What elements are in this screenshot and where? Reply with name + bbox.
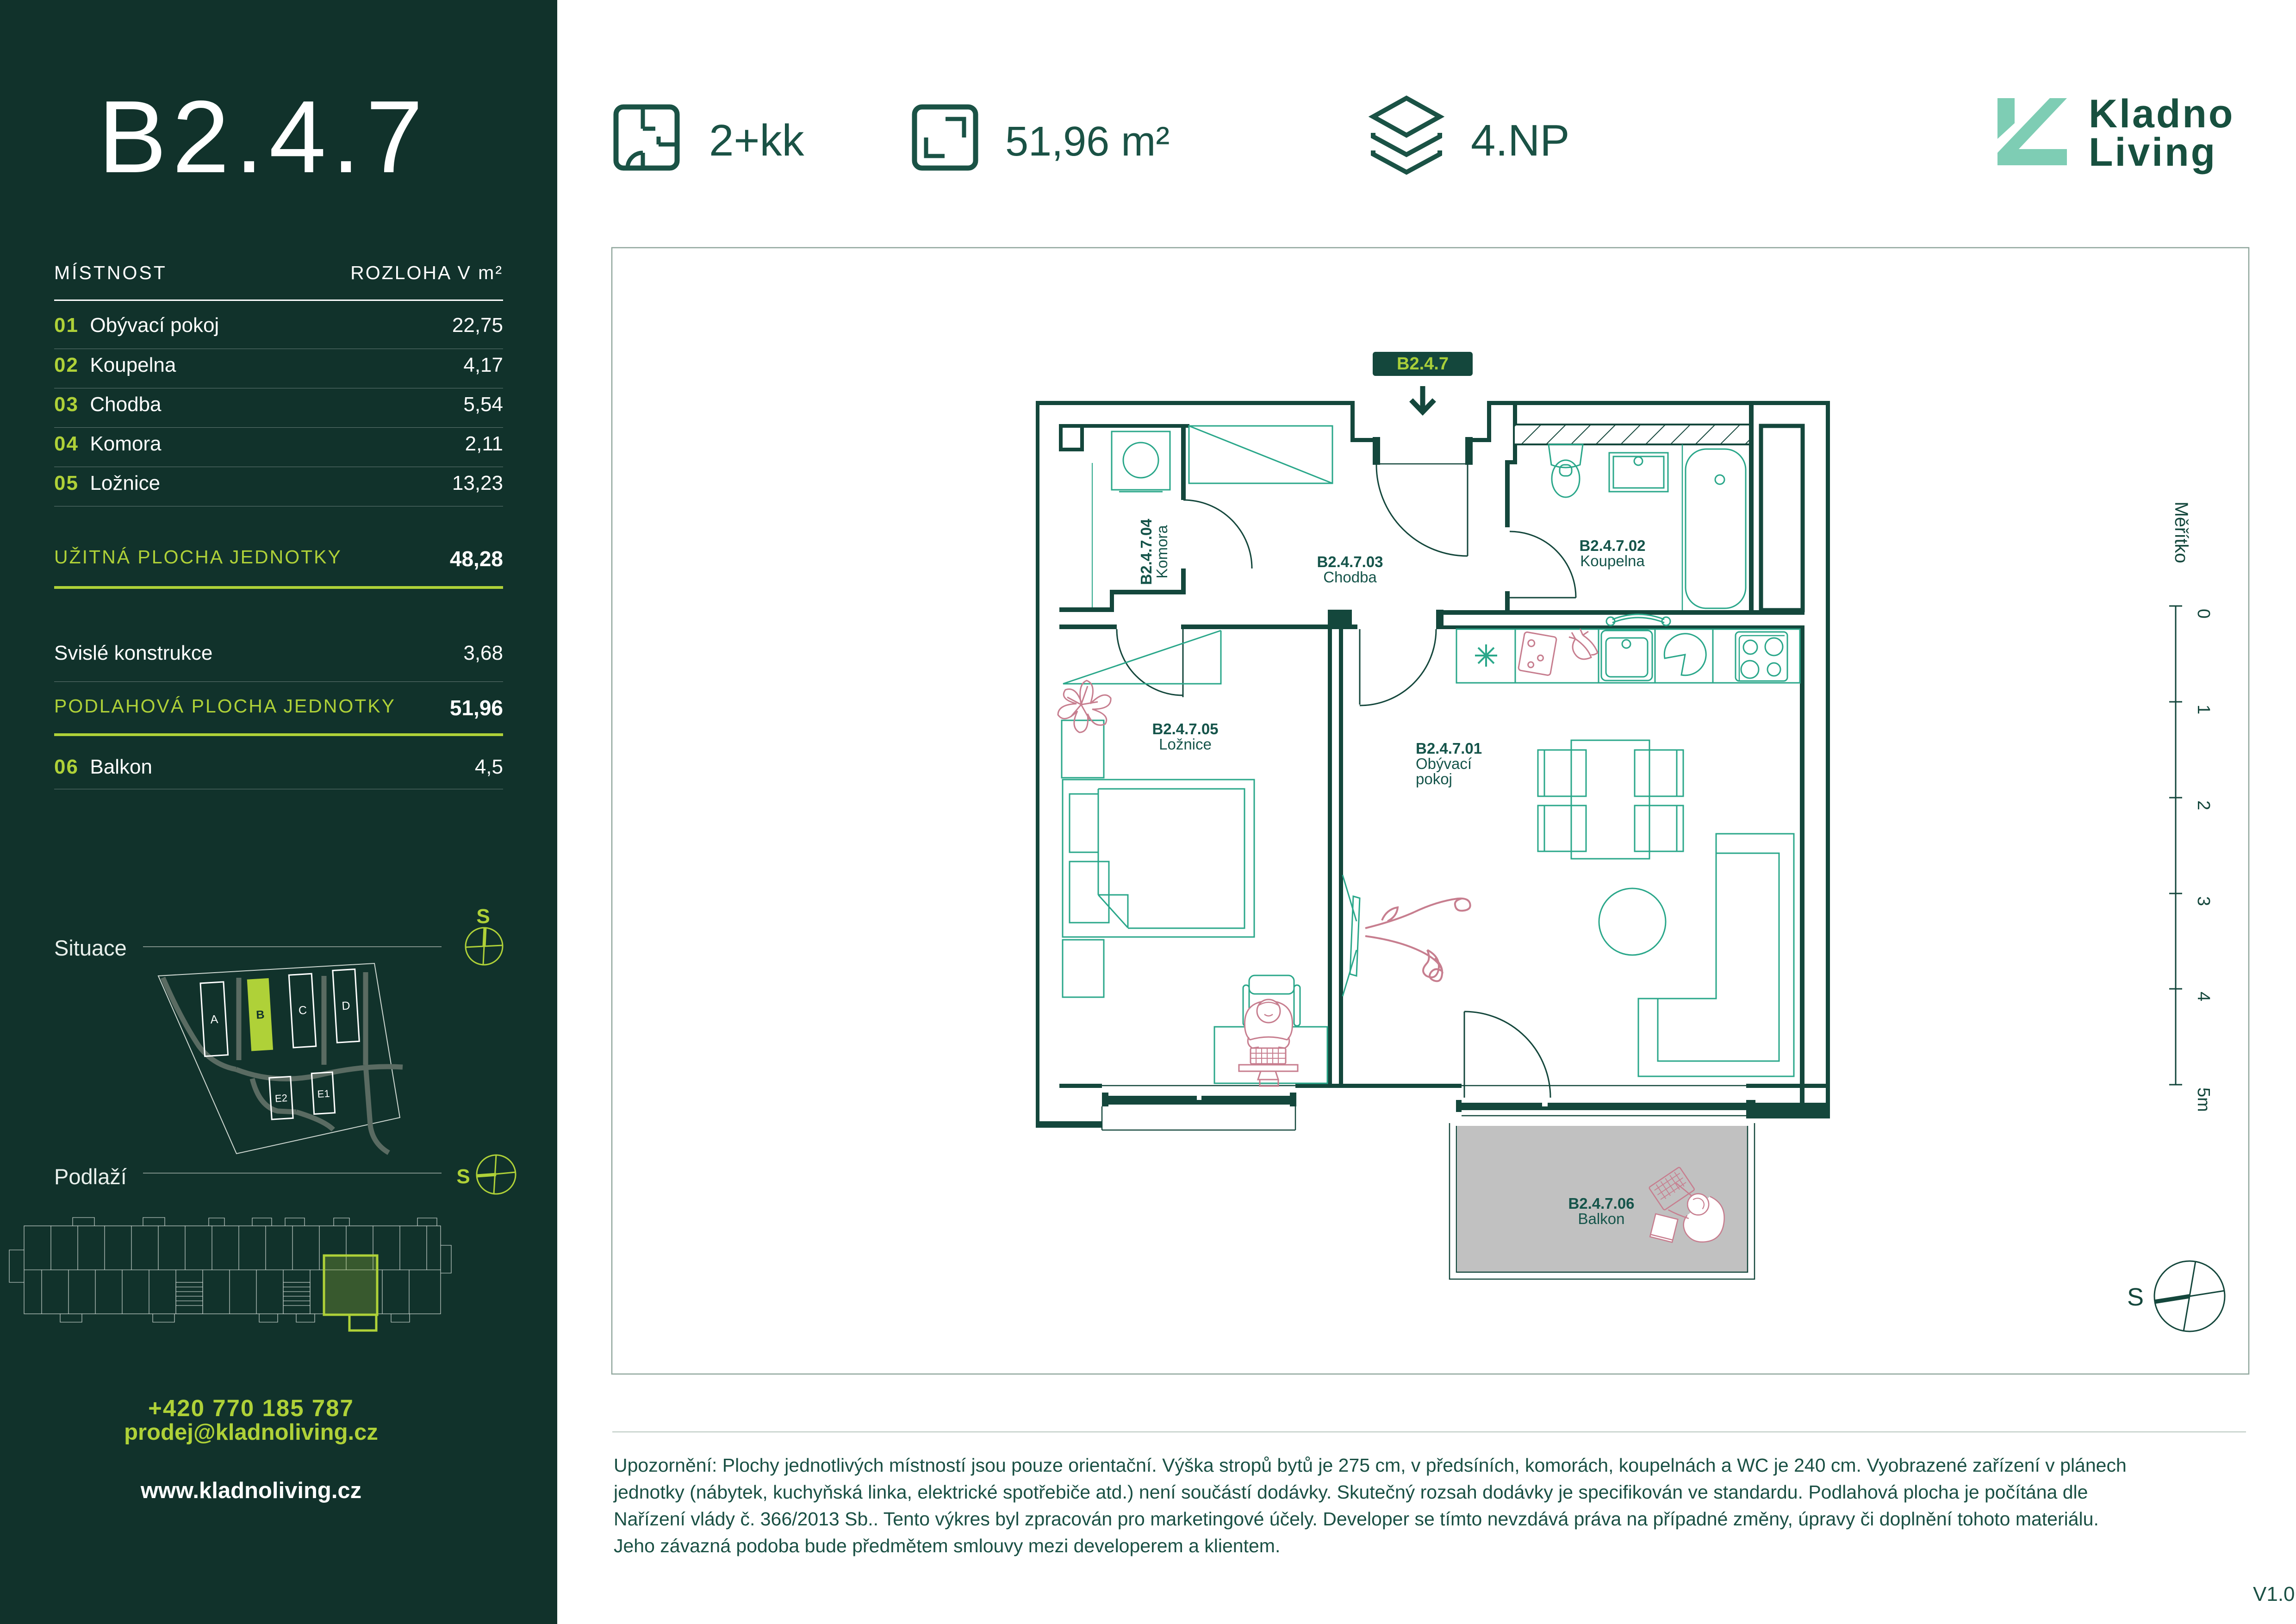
svg-text:S: S [456, 1165, 470, 1188]
svg-text:Komora: Komora [1153, 525, 1170, 579]
svg-text:B2.4.7: B2.4.7 [1397, 354, 1449, 374]
svg-text:D: D [342, 999, 351, 1012]
svg-text:S: S [2127, 1283, 2144, 1311]
svg-text:2: 2 [2194, 800, 2213, 810]
svg-text:E1: E1 [317, 1087, 330, 1100]
svg-text:3: 3 [2194, 896, 2213, 906]
svg-text:B2.4.7.03: B2.4.7.03 [1317, 553, 1383, 570]
svg-text:51,96 m²: 51,96 m² [1005, 119, 1170, 165]
svg-text:B2.4.7.04: B2.4.7.04 [1138, 518, 1155, 585]
svg-text:Chodba: Chodba [1323, 568, 1377, 586]
svg-text:0: 0 [2194, 609, 2213, 618]
svg-text:B2.4.7.02: B2.4.7.02 [1579, 537, 1645, 554]
svg-text:C: C [298, 1004, 307, 1017]
svg-text:4.NP: 4.NP [1471, 116, 1569, 165]
svg-text:B2.4.7.01: B2.4.7.01 [1416, 740, 1482, 757]
svg-text:Koupelna: Koupelna [1580, 552, 1645, 569]
svg-text:Ložnice: Ložnice [1159, 736, 1212, 753]
svg-text:B2.4.7.05: B2.4.7.05 [1152, 720, 1218, 737]
svg-text:V1.0: V1.0 [2253, 1583, 2295, 1605]
svg-text:Obývací: Obývací [1416, 755, 1472, 772]
svg-text:1: 1 [2194, 705, 2213, 714]
svg-text:S: S [476, 905, 490, 928]
svg-text:2+kk: 2+kk [709, 116, 804, 165]
svg-text:E2: E2 [274, 1092, 287, 1105]
svg-text:A: A [210, 1013, 219, 1026]
svg-text:B: B [256, 1008, 265, 1022]
svg-text:Balkon: Balkon [1578, 1210, 1625, 1227]
svg-text:pokoj: pokoj [1416, 770, 1452, 787]
svg-text:Living: Living [2089, 130, 2217, 175]
svg-text:B2.4.7.06: B2.4.7.06 [1568, 1195, 1634, 1212]
svg-text:Měřítko: Měřítko [2171, 501, 2191, 563]
svg-text:5m: 5m [2194, 1087, 2213, 1112]
svg-text:Kladno: Kladno [2089, 92, 2234, 136]
svg-text:4: 4 [2194, 992, 2213, 1001]
